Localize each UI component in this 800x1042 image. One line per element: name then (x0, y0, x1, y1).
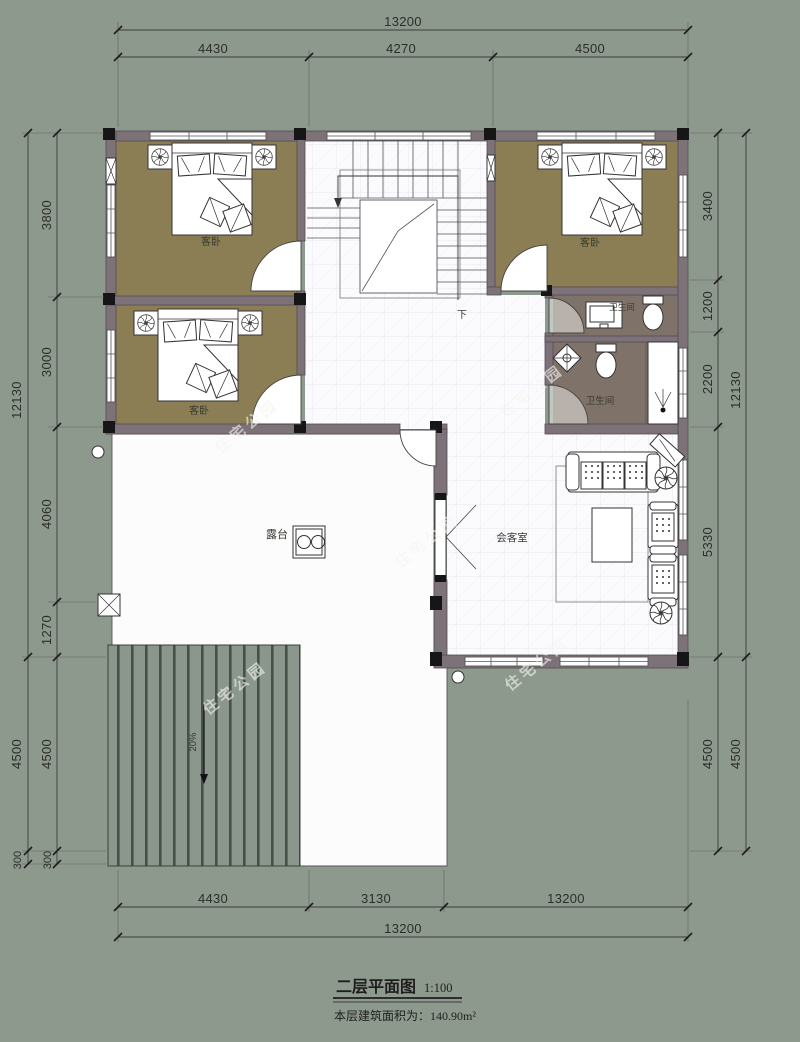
roof-slope-label: 20% (188, 732, 199, 752)
armchair (648, 502, 678, 554)
toilet (596, 344, 616, 378)
dim-left-inner6: 300 (42, 851, 54, 869)
wall-shaft (487, 155, 495, 181)
dim-top-seg2: 4270 (386, 41, 416, 56)
armchair (648, 554, 678, 606)
dim-left-inner1: 3800 (39, 200, 54, 230)
window (679, 460, 687, 540)
dim-left-inner2: 3000 (39, 347, 54, 377)
skylight (293, 526, 325, 558)
dim-right-inner3: 2200 (700, 364, 715, 394)
three-seat-sofa (566, 452, 660, 492)
floor-plan-page: 下 (0, 0, 800, 1042)
dim-right-inner5: 4500 (700, 739, 715, 769)
drawing-title: 二层平面图 (336, 978, 416, 996)
stairs-down-label: 下 (457, 310, 467, 321)
window (560, 657, 648, 666)
floor-plan-svg: 下 (0, 0, 800, 1042)
title-block: 二层平面图 1:100 本层建筑面积为：140.90m² (333, 978, 476, 1023)
dim-left-outer1: 12130 (9, 381, 24, 419)
bath-lower-label: 卫生间 (586, 395, 615, 407)
window (107, 330, 115, 402)
bedroom-top-left-label: 客卧 (201, 235, 221, 248)
dimensions-top: 13200 4430 4270 4500 (114, 14, 692, 127)
dimensions-left: 3800 3000 4060 1270 4500 300 12130 4500 … (9, 129, 106, 869)
dim-bottom-seg1: 4430 (198, 891, 228, 906)
dim-right-inner1: 3400 (700, 191, 715, 221)
dim-right-outer1: 12130 (728, 371, 743, 409)
dim-left-inner3: 4060 (39, 499, 54, 529)
window (679, 555, 687, 635)
dim-right-inner4: 5330 (700, 527, 715, 557)
window (537, 132, 655, 140)
window (679, 348, 687, 418)
dim-bottom-seg2: 3130 (361, 891, 391, 906)
floor-area-note: 本层建筑面积为：140.90m² (334, 1008, 476, 1023)
dim-right-outer2: 4500 (728, 739, 743, 769)
dim-left-outer2: 4500 (9, 739, 24, 769)
downspout (452, 671, 464, 683)
bath-upper-label: 卫生间 (609, 302, 635, 312)
dim-right-inner2: 1200 (700, 291, 715, 321)
dim-left-outer3: 300 (12, 851, 24, 869)
potted-plant (655, 467, 677, 489)
dim-bottom-overall: 13200 (384, 921, 422, 936)
shower (646, 342, 678, 424)
window (327, 132, 471, 140)
dim-left-inner5: 4500 (39, 739, 54, 769)
living-room-label: 会客室 (496, 531, 528, 544)
dim-top-seg1: 4430 (198, 41, 228, 56)
window (107, 185, 115, 257)
toilet (643, 296, 663, 330)
potted-plant (650, 602, 672, 624)
window (679, 175, 687, 257)
dim-left-inner4: 1270 (39, 615, 54, 645)
bedroom-top-right-label: 客卧 (580, 236, 600, 249)
drain-marker (98, 594, 120, 616)
bedroom-mid-left-label: 客卧 (189, 404, 209, 417)
downspout (92, 446, 104, 458)
coffee-table (592, 508, 632, 562)
dim-top-seg3: 4500 (575, 41, 605, 56)
wall-shaft (106, 158, 116, 184)
drawing-scale: 1:100 (424, 981, 452, 995)
dim-top-overall: 13200 (384, 14, 422, 29)
stair-landing (360, 200, 437, 293)
window (150, 132, 266, 140)
terrace-label: 露台 (266, 527, 288, 541)
dim-bottom-seg3: 13200 (547, 891, 585, 906)
dimensions-right: 3400 1200 2200 5330 4500 12130 4500 (690, 129, 752, 855)
